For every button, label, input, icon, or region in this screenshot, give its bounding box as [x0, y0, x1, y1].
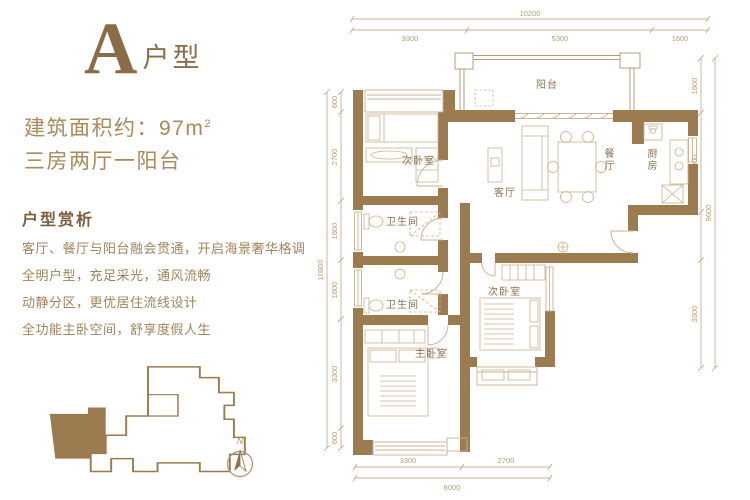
room-label-living: 客厅	[494, 184, 516, 199]
unit-letter: A	[84, 12, 137, 86]
dim-bottom-seg: 3300	[400, 456, 417, 465]
dim-top-seg: 5300	[552, 34, 569, 43]
dimension-lines	[324, 16, 718, 481]
dim-top-total: 10200	[520, 9, 541, 18]
room-label-bedroom-mid: 次卧室	[488, 283, 521, 298]
analysis-title: 户型赏析	[22, 206, 94, 230]
dim-right-seg: 1800	[690, 78, 699, 95]
compass: N	[217, 433, 263, 489]
dim-left-seg: 3300	[330, 366, 339, 383]
area-exponent: 2	[204, 118, 212, 130]
dim-top-seg: 1600	[672, 34, 689, 43]
unit-a-highlight	[50, 407, 106, 458]
analysis-line: 全明户型，充足采光，通风流畅	[22, 262, 306, 289]
dimension-labels: 10200 3300 5300 1600 3300 2700 6000 600 …	[316, 9, 713, 492]
dim-left-seg: 1800	[330, 282, 339, 299]
dim-left-seg: 600	[330, 432, 339, 445]
area-line: 建筑面积约：97m2	[24, 108, 212, 145]
room-label-bath-upper: 卫生间	[386, 213, 419, 228]
analysis-line: 动静分区，更优居住流线设计	[22, 289, 306, 316]
dim-left-seg: 2700	[330, 149, 339, 166]
dim-left-seg: 600	[330, 96, 339, 109]
room-label-balcony: 阳台	[536, 76, 558, 91]
analysis-text: 客厅、餐厅与阳台融会贯通，开启海景奢华格调 全明户型，充足采光，通风流畅 动静分…	[22, 235, 306, 343]
room-label-kitchen: 厨房	[643, 148, 658, 172]
analysis-line: 全功能主卧空间，舒享度假人生	[22, 316, 306, 343]
room-label-bath-lower: 卫生间	[386, 296, 419, 311]
room-label-master: 主卧室	[415, 345, 448, 360]
compass-north-label: N	[237, 436, 244, 446]
dim-bottom-seg: 2700	[498, 456, 515, 465]
floorplan-drawing: 10200 3300 5300 1600 3300 2700 6000 600 …	[310, 0, 750, 500]
floorplan-page: A 户型 建筑面积约：97m2 三房两厅一阳台 户型赏析 客厅、餐厅与阳台融会贯…	[0, 0, 750, 500]
unit-type-label: 户型	[142, 36, 202, 75]
unit-title: A 户型	[84, 12, 202, 86]
layout-line: 三房两厅一阳台	[24, 145, 212, 178]
dim-right-total: 9600	[704, 205, 713, 222]
room-label-dining: 餐厅	[600, 148, 615, 172]
dim-bottom-total: 6000	[444, 483, 461, 492]
analysis-line: 客厅、餐厅与阳台融会贯通，开启海景奢华格调	[22, 235, 306, 262]
building-inner-line	[148, 395, 178, 416]
dim-left-total: 10800	[316, 260, 325, 281]
dim-right-seg: 3300	[690, 306, 699, 323]
unit-summary: 建筑面积约：97m2 三房两厅一阳台	[24, 108, 212, 178]
dim-left-seg: 1800	[330, 223, 339, 240]
dim-top-seg: 3300	[402, 34, 419, 43]
room-label-bedroom-top: 次卧室	[402, 152, 435, 167]
windows	[355, 90, 697, 455]
